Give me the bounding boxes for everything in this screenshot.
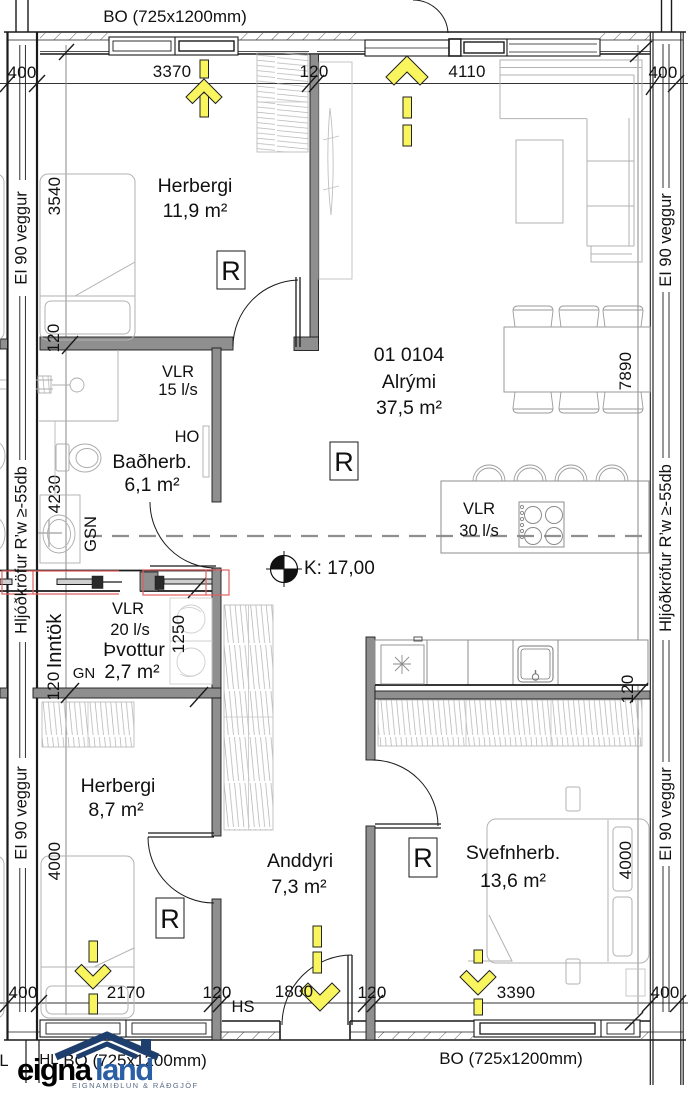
- svg-text:HO: HO: [175, 428, 200, 446]
- svg-text:L: L: [0, 1052, 9, 1070]
- svg-text:EI 90 veggur: EI 90 veggur: [13, 191, 31, 285]
- svg-text:4110: 4110: [448, 62, 485, 81]
- svg-text:EI 90 veggur: EI 90 veggur: [657, 767, 675, 861]
- svg-text:Anddyri: Anddyri: [267, 850, 333, 872]
- svg-text:120: 120: [358, 983, 387, 1002]
- svg-text:3540: 3540: [45, 177, 64, 216]
- svg-text:Herbergi: Herbergi: [158, 175, 233, 197]
- svg-text:2170: 2170: [107, 983, 146, 1002]
- svg-text:37,5 m²: 37,5 m²: [376, 397, 443, 419]
- svg-text:01 0104: 01 0104: [374, 344, 445, 366]
- svg-text:4000: 4000: [45, 842, 64, 881]
- svg-text:120: 120: [203, 983, 232, 1002]
- svg-text:EI 90 veggur: EI 90 veggur: [13, 766, 31, 860]
- svg-text:Inntök: Inntök: [44, 613, 66, 668]
- svg-text:30 l/s: 30 l/s: [459, 522, 498, 540]
- svg-text:7890: 7890: [616, 352, 635, 391]
- svg-text:R: R: [221, 256, 241, 286]
- svg-text:VLR: VLR: [162, 363, 194, 381]
- svg-text:120: 120: [44, 672, 63, 701]
- svg-text:13,6 m²: 13,6 m²: [480, 870, 547, 892]
- svg-text:EIGNAMIÐLUN & RÁÐGJÖF: EIGNAMIÐLUN & RÁÐGJÖF: [72, 1081, 199, 1090]
- svg-text:R: R: [413, 843, 433, 873]
- svg-text:4230: 4230: [45, 475, 64, 514]
- svg-text:Alrými: Alrými: [382, 371, 436, 393]
- svg-text:BO (725x1200mm): BO (725x1200mm): [103, 7, 247, 26]
- svg-text:1800: 1800: [275, 982, 314, 1001]
- svg-text:Hljóðkröfur R’w ≥-55db: Hljóðkröfur R’w ≥-55db: [13, 466, 31, 634]
- svg-text:3390: 3390: [497, 983, 536, 1002]
- svg-text:Svefnherb.: Svefnherb.: [466, 842, 560, 864]
- svg-text:7,3 m²: 7,3 m²: [271, 876, 327, 898]
- svg-text:EI 90 veggur: EI 90 veggur: [657, 193, 675, 287]
- svg-text:Herbergi: Herbergi: [81, 775, 156, 797]
- svg-text:VLR: VLR: [112, 600, 144, 618]
- svg-text:120: 120: [618, 675, 637, 704]
- svg-text:1250: 1250: [169, 615, 188, 654]
- svg-text:Hljóðkröfur R’w ≥-55db: Hljóðkröfur R’w ≥-55db: [657, 464, 675, 632]
- svg-text:400: 400: [8, 63, 37, 82]
- svg-text:Baðherb.: Baðherb.: [112, 451, 191, 473]
- svg-text:3370: 3370: [153, 62, 192, 81]
- svg-text:R: R: [160, 904, 180, 934]
- svg-text:GN: GN: [73, 665, 96, 682]
- svg-text:20 l/s: 20 l/s: [110, 621, 149, 639]
- svg-text:120: 120: [300, 62, 329, 81]
- svg-text:400: 400: [651, 983, 680, 1002]
- svg-text:2,7 m²: 2,7 m²: [104, 661, 160, 683]
- svg-text:Þvottur: Þvottur: [103, 639, 165, 661]
- svg-text:120: 120: [44, 324, 63, 353]
- svg-text:BO (725x1200mm): BO (725x1200mm): [439, 1049, 583, 1068]
- svg-text:6,1 m²: 6,1 m²: [124, 474, 180, 496]
- svg-text:HS: HS: [232, 998, 255, 1016]
- svg-text:K: 17,00: K: 17,00: [304, 558, 375, 579]
- svg-text:4000: 4000: [616, 841, 635, 880]
- svg-text:400: 400: [649, 63, 678, 82]
- svg-text:11,9 m²: 11,9 m²: [163, 200, 228, 222]
- svg-text:15 l/s: 15 l/s: [158, 381, 197, 399]
- svg-text:400: 400: [9, 983, 38, 1002]
- svg-text:8,7 m²: 8,7 m²: [88, 799, 144, 821]
- svg-text:VLR: VLR: [463, 500, 495, 518]
- svg-text:R: R: [334, 447, 354, 477]
- svg-text:GSN: GSN: [82, 516, 100, 552]
